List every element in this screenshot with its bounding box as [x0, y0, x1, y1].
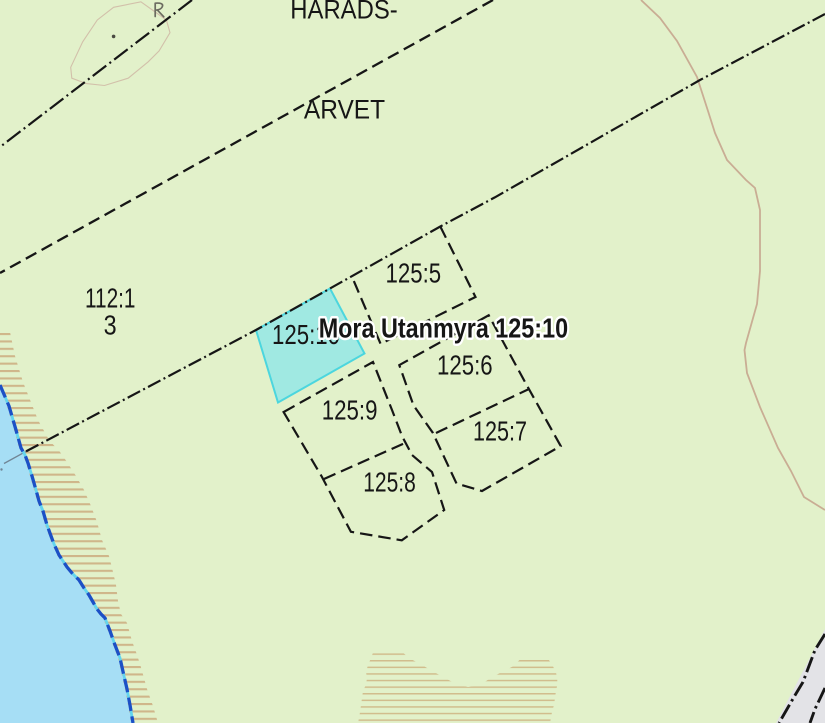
svg-text:ARVET: ARVET	[304, 95, 385, 125]
svg-text:125:9: 125:9	[322, 395, 378, 426]
svg-text:HARADS-: HARADS-	[290, 0, 397, 25]
svg-text:125:8: 125:8	[363, 467, 416, 498]
svg-text:3: 3	[104, 310, 117, 341]
svg-text:125:6: 125:6	[437, 350, 493, 381]
svg-text:Mora Utanmyra 125:10: Mora Utanmyra 125:10	[319, 313, 568, 344]
svg-text:125:7: 125:7	[473, 416, 527, 447]
svg-text:125:5: 125:5	[386, 258, 442, 289]
